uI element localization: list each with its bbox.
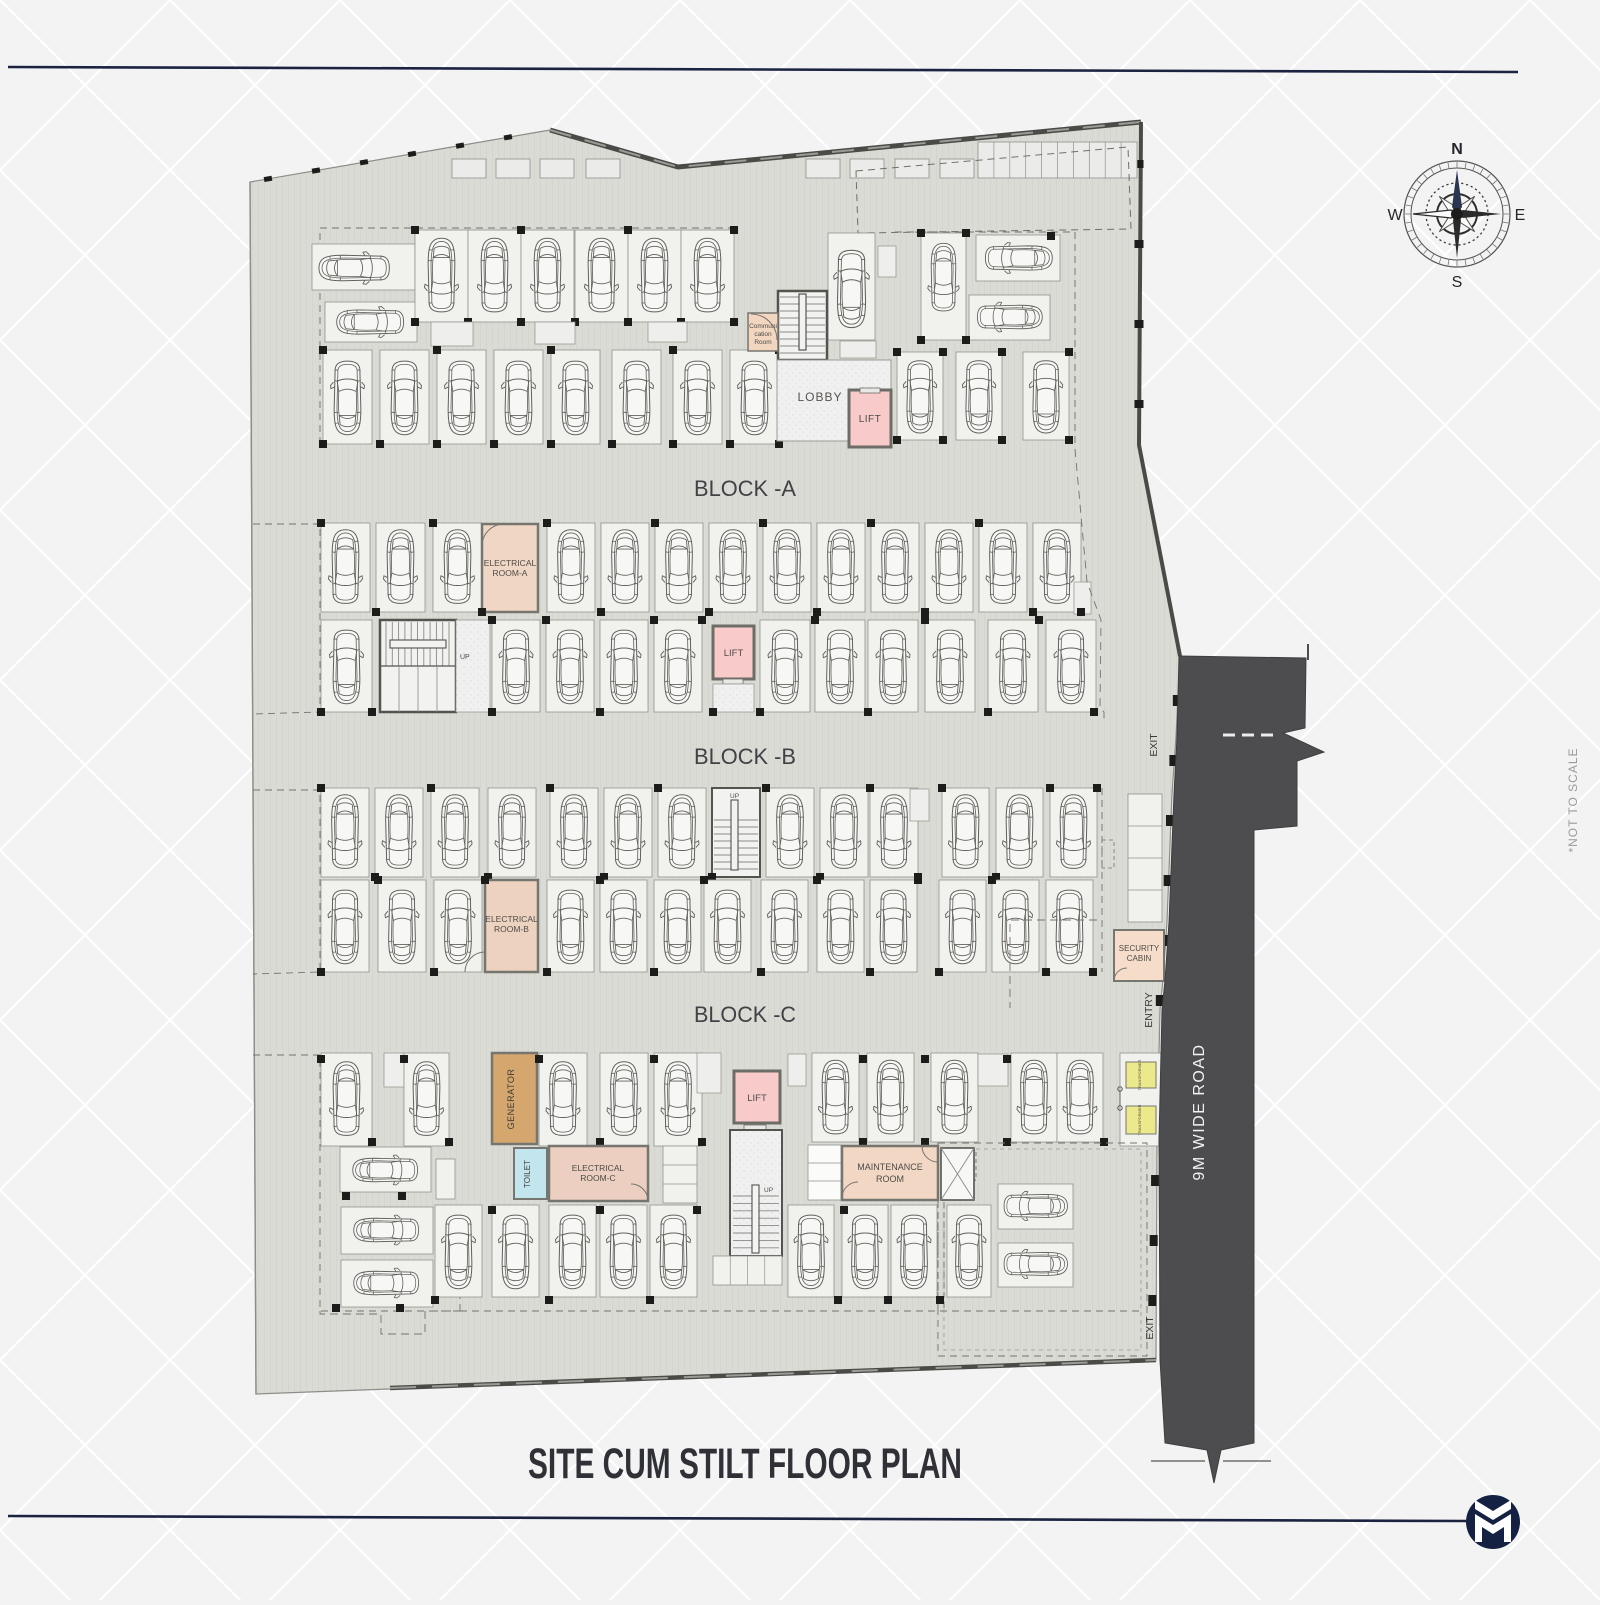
- svg-text:BLOCK -A: BLOCK -A: [694, 476, 796, 501]
- svg-text:9M WIDE ROAD: 9M WIDE ROAD: [1191, 1043, 1208, 1180]
- svg-text:ELECTRICAL: ELECTRICAL: [484, 558, 537, 568]
- svg-text:UP: UP: [730, 793, 739, 800]
- svg-text:ROOM-C: ROOM-C: [580, 1173, 615, 1183]
- svg-text:N: N: [1451, 141, 1463, 158]
- svg-text:W: W: [1387, 207, 1403, 224]
- svg-text:ELECTRICAL: ELECTRICAL: [485, 914, 538, 924]
- svg-text:LOBBY: LOBBY: [797, 390, 842, 404]
- svg-text:BLOCK -C: BLOCK -C: [694, 1002, 796, 1027]
- svg-text:EXIT: EXIT: [1148, 733, 1160, 757]
- svg-text:TOILET: TOILET: [523, 1160, 532, 1188]
- svg-text:E: E: [1515, 207, 1526, 224]
- svg-text:LIFT: LIFT: [747, 1093, 767, 1104]
- svg-text:ELECTRICAL: ELECTRICAL: [572, 1163, 625, 1173]
- svg-text:BLOCK -B: BLOCK -B: [694, 744, 796, 769]
- svg-text:UP: UP: [764, 1187, 773, 1194]
- svg-text:TRANSFORMER: TRANSFORMER: [1137, 1104, 1142, 1135]
- svg-text:ROOM-B: ROOM-B: [494, 924, 529, 934]
- svg-text:ENTRY: ENTRY: [1143, 992, 1155, 1027]
- svg-text:LIFT: LIFT: [724, 648, 744, 659]
- svg-text:TRANSFORMER: TRANSFORMER: [1137, 1059, 1142, 1090]
- svg-text:UP: UP: [460, 654, 470, 661]
- svg-text:ROOM: ROOM: [876, 1174, 904, 1184]
- svg-text:ROOM-A: ROOM-A: [493, 568, 528, 578]
- svg-text:*NOT TO SCALE: *NOT TO SCALE: [1566, 747, 1580, 852]
- svg-text:Room: Room: [754, 339, 771, 346]
- svg-text:CABIN: CABIN: [1127, 954, 1152, 963]
- svg-text:cation: cation: [754, 331, 772, 338]
- svg-text:S: S: [1452, 274, 1463, 291]
- svg-text:SITE CUM STILT FLOOR PLAN: SITE CUM STILT FLOOR PLAN: [528, 1440, 962, 1488]
- svg-text:GENERATOR: GENERATOR: [506, 1069, 516, 1130]
- svg-text:SECURITY: SECURITY: [1119, 944, 1160, 953]
- svg-text:LIFT: LIFT: [859, 414, 882, 425]
- svg-text:MAINTENANCE: MAINTENANCE: [857, 1162, 923, 1172]
- svg-text:EXIT: EXIT: [1144, 1316, 1156, 1340]
